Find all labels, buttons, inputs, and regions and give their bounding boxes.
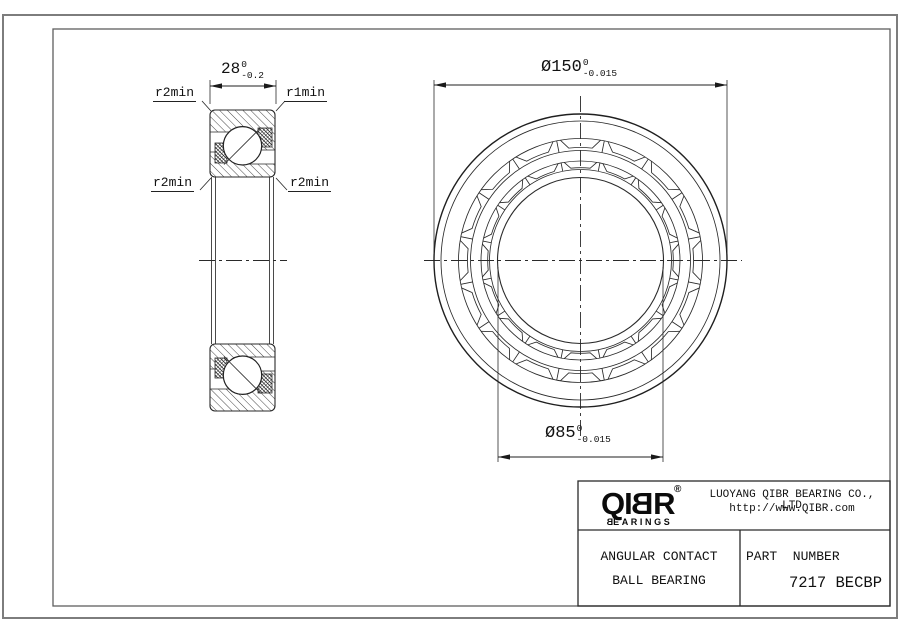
registered-trademark-icon: ®: [674, 484, 681, 495]
drawing-frame: [53, 29, 890, 606]
upper-section: [210, 110, 275, 177]
logo-sub-mirrored-b: B: [604, 517, 613, 527]
radius-label-top-left: r2min: [153, 86, 196, 102]
od-value: Ø150: [541, 59, 582, 76]
width-dimension: [210, 80, 276, 104]
product-name-line2: BALL BEARING: [579, 574, 739, 587]
od-dimension-text: Ø150 0 -0.015: [541, 59, 617, 80]
width-value: 28: [221, 61, 240, 77]
bore-tol-upper: 0: [577, 423, 611, 434]
bore-dimension-text: Ø85 0 -0.015: [545, 425, 611, 446]
radius-label-bottom-right: r2min: [288, 176, 331, 192]
logo-letter: R: [653, 486, 674, 521]
company-website: http://www.QIBR.com: [698, 504, 886, 515]
drawing-linework: [0, 0, 900, 636]
width-tol-lower: -0.2: [241, 70, 264, 81]
width-tol-upper: 0: [241, 59, 264, 70]
radius-label-bottom-left: r2min: [151, 176, 194, 192]
logo-letter-mirrored-b: B: [632, 488, 653, 519]
od-tol-lower: -0.015: [583, 68, 617, 79]
width-dimension-text: 28 0 -0.2: [221, 61, 264, 82]
lower-section: [210, 344, 275, 411]
bore-value: Ø85: [545, 425, 576, 442]
part-number-value: 7217 BECBP: [740, 576, 882, 592]
product-name-line1: ANGULAR CONTACT: [579, 550, 739, 563]
logo-letter: Q: [601, 486, 624, 521]
logo-letter: I: [624, 486, 632, 521]
radius-label-top-right: r1min: [284, 86, 327, 102]
outer-page-border: [3, 15, 897, 618]
od-tol-upper: 0: [583, 57, 617, 68]
logo-sub-rest: EARINGS: [613, 517, 672, 527]
drawing-sheet: Ø150 0 -0.015 Ø85 0 -0.015 28 0 -0.2 r2m…: [0, 0, 900, 636]
logo-subtext: BEARINGS: [604, 517, 672, 527]
bore-tol-lower: -0.015: [577, 434, 611, 445]
part-number-label: PART NUMBER: [746, 550, 840, 563]
front-view: [424, 80, 742, 462]
qibr-logo: QIBR: [601, 488, 675, 519]
left-view-cross-section: [199, 80, 287, 411]
